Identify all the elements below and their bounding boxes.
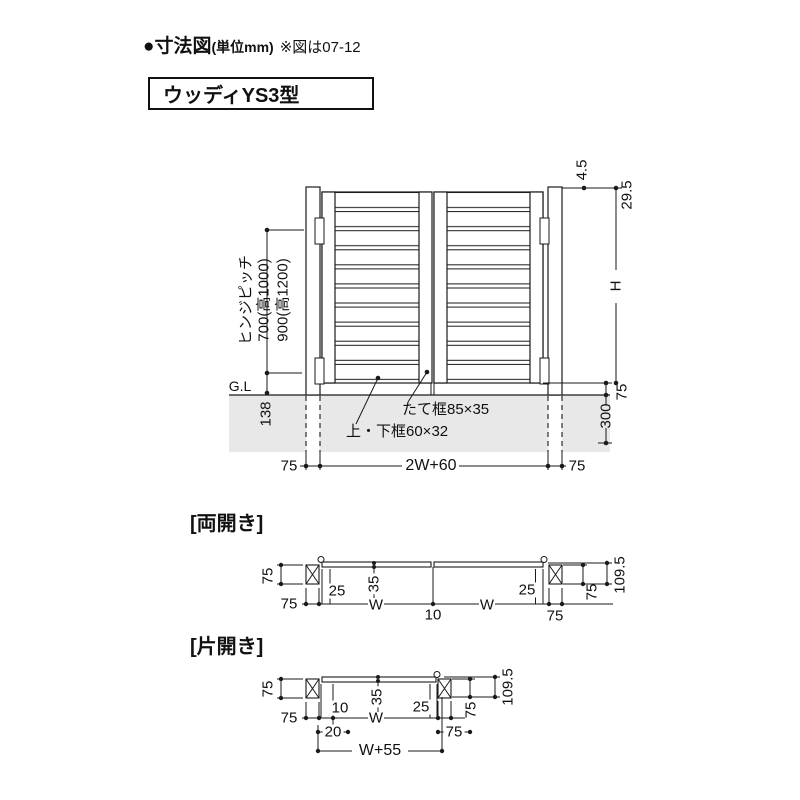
page-title-main: ●寸法図 — [143, 31, 211, 58]
ds-dim-w-left: W — [369, 598, 383, 613]
dimension-drawing-page: ●寸法図 (単位mm) ※図は07-12 ウッディYS3型 G.L ヒンジピッチ… — [0, 0, 800, 800]
ss-dim-109-5: 109.5 — [501, 668, 516, 706]
ss-dim-10: 10 — [330, 701, 351, 716]
gate-leaves — [322, 192, 543, 395]
ss-dim-25: 25 — [411, 700, 432, 715]
ds-dim-75-bottom-left: 75 — [281, 597, 298, 612]
ds-dim-75-bottom-right: 75 — [547, 609, 564, 624]
product-name: ウッディYS3型 — [163, 79, 299, 108]
ss-dim-w: W — [369, 711, 383, 726]
dim-75-right: 75 — [615, 384, 630, 401]
stile-note: たて框85×35 — [402, 402, 489, 417]
ss-dim-75-bottom-left: 75 — [281, 711, 298, 726]
ds-dim-25-left: 25 — [327, 584, 348, 599]
ds-dim-75-left: 75 — [261, 568, 276, 585]
dim-300: 300 — [599, 403, 614, 428]
product-name-box: ウッディYS3型 — [148, 77, 374, 110]
section-title-single-swing: [片開き] — [190, 637, 263, 657]
dim-29-5: 29.5 — [620, 180, 635, 209]
page-title-unit: (単位mm) — [211, 37, 273, 57]
ss-dim-35: 35 — [370, 687, 385, 708]
ds-dim-w-right: W — [480, 598, 494, 613]
hinge-pitch-label-2: 700(高1000) — [257, 258, 272, 341]
ds-dim-25-right: 25 — [517, 583, 538, 598]
ds-dim-35: 35 — [367, 574, 382, 595]
ss-dim-75-bottom-right: 75 — [444, 725, 465, 740]
section-title-double-swing: [両開き] — [190, 514, 263, 534]
dim-75-bottom-right: 75 — [569, 459, 586, 474]
page-title-note: ※図は07-12 — [280, 36, 361, 57]
ss-dim-75-left: 75 — [261, 681, 276, 698]
hinge-pitch-label-1: ヒンジピッチ — [239, 255, 254, 345]
ds-dim-10: 10 — [425, 608, 442, 623]
dim-75-bottom-left: 75 — [281, 459, 298, 474]
page-title: ●寸法図 (単位mm) ※図は07-12 — [143, 31, 361, 58]
ground-line-label: G.L — [229, 379, 252, 393]
dim-2w60: 2W+60 — [405, 458, 456, 474]
ss-dim-20: 20 — [323, 725, 344, 740]
dim-height-h: H — [609, 279, 624, 294]
rails-note: 上・下框60×32 — [346, 424, 448, 439]
dim-138: 138 — [259, 401, 274, 426]
ds-dim-109-5: 109.5 — [613, 556, 628, 594]
dim-4-5: 4.5 — [575, 160, 590, 181]
drawing-linework — [0, 0, 800, 800]
ds-dim-75-right: 75 — [585, 584, 600, 601]
ss-dim-75-right: 75 — [464, 702, 479, 719]
hinge-pitch-label-3: 900(高1200) — [276, 258, 291, 341]
ss-dim-w55: W+55 — [359, 743, 401, 759]
